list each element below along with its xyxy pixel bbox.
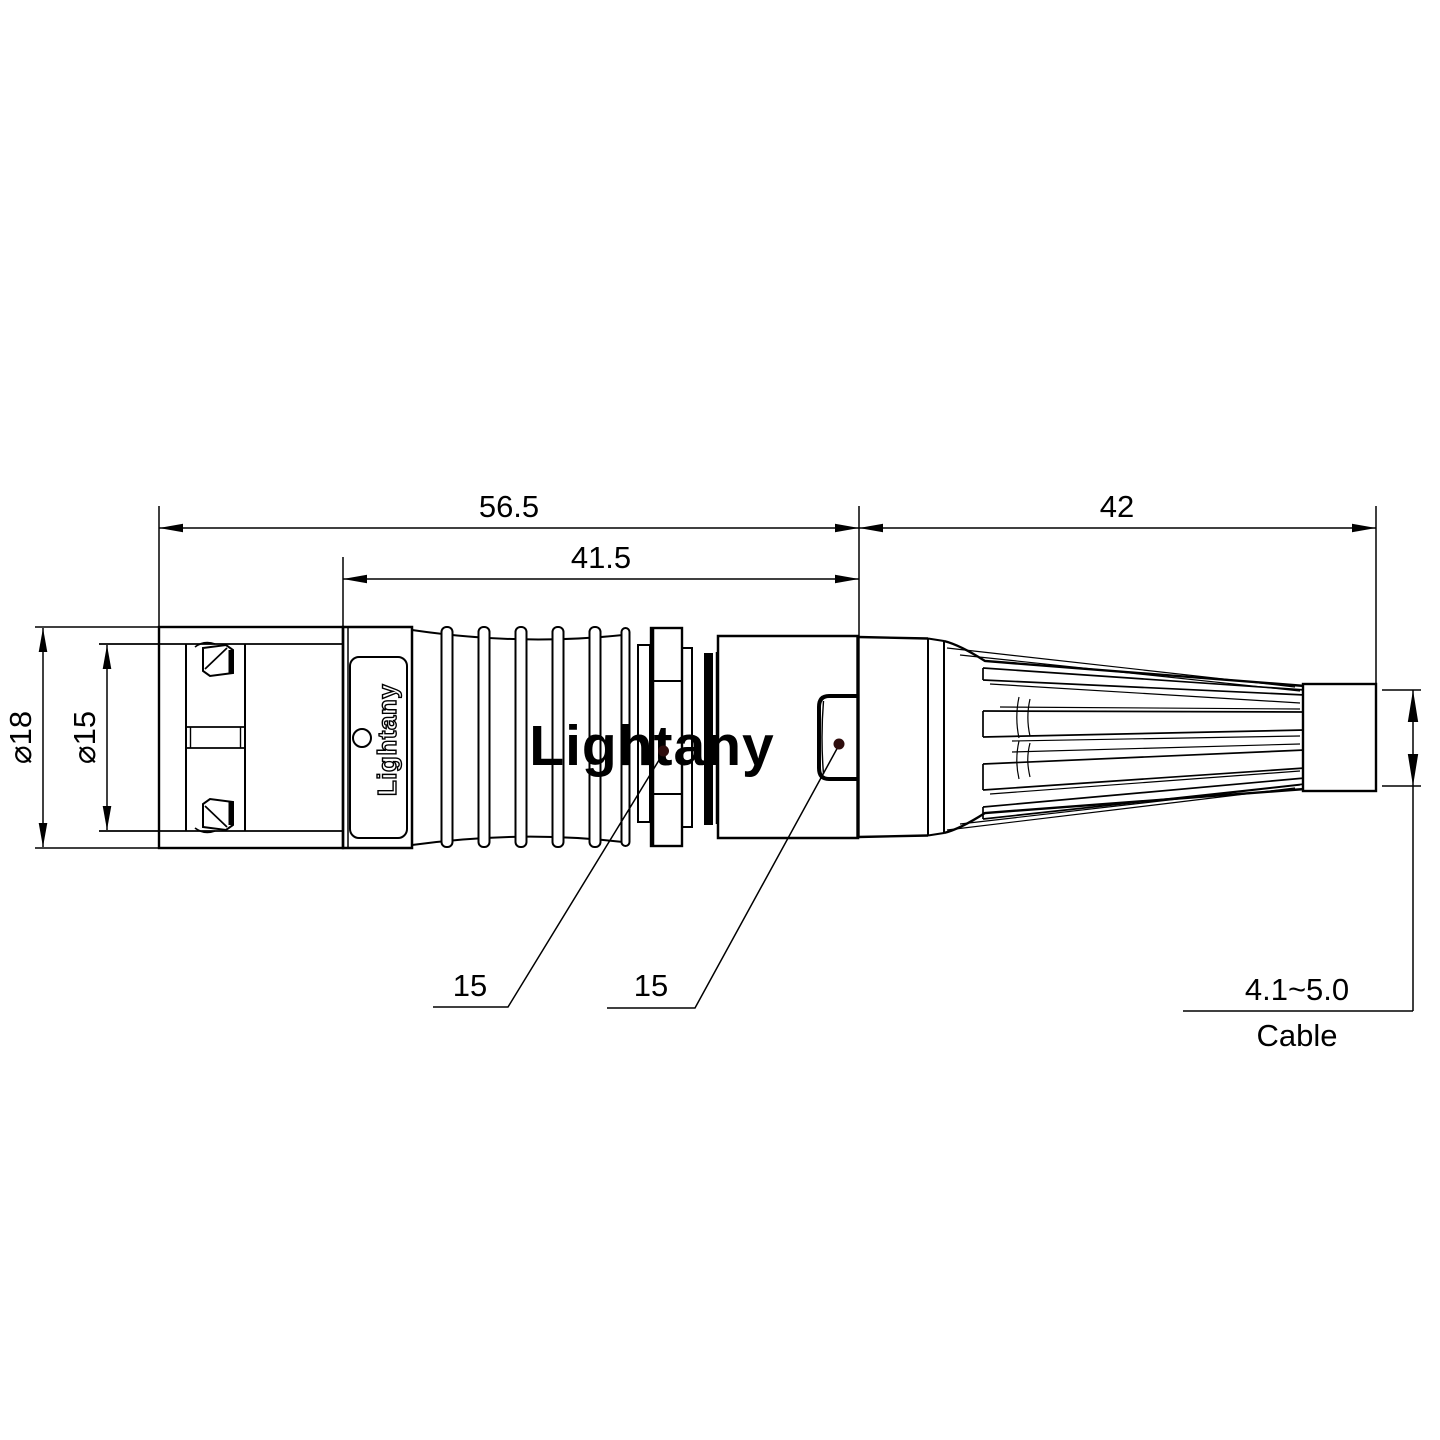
flute-diagonal <box>1000 707 1300 709</box>
fin-line <box>983 711 1305 712</box>
leader-dot-collar <box>658 746 669 757</box>
watermark-text: Lightany <box>529 714 775 778</box>
connector-side-view-drawing: Lightany Lightany 56.5 42 41.5 ⌀18 <box>0 0 1440 1440</box>
arrowhead <box>103 806 112 830</box>
flute-diagonal <box>1012 736 1300 741</box>
arrowhead <box>835 575 859 584</box>
dim-grip-length: 41.5 <box>571 540 631 575</box>
grip-index-circle <box>353 729 371 747</box>
boot-fins <box>983 668 1305 819</box>
dim-overall-length: 56.5 <box>479 489 539 524</box>
arrowhead <box>859 524 883 533</box>
technical-drawing-page: Lightany Lightany 56.5 42 41.5 ⌀18 <box>0 0 1440 1440</box>
callout-collar-ref: 15 <box>453 968 487 1003</box>
fin-line <box>983 750 1305 764</box>
arrowhead <box>1408 754 1418 786</box>
arrowhead <box>1408 690 1418 722</box>
cable-caption: Cable <box>1257 1018 1338 1053</box>
arrowhead <box>1352 524 1376 533</box>
arrowhead <box>343 575 367 584</box>
arrowhead <box>103 645 112 669</box>
latch-key-bottom <box>195 799 233 832</box>
arrowhead <box>39 628 48 652</box>
body-marking-text: Lightany <box>372 684 402 796</box>
backshell-window <box>819 696 858 779</box>
horizontal-dimensions: 56.5 42 41.5 <box>159 489 1376 684</box>
rib-ring <box>442 627 453 847</box>
arrowhead <box>835 524 859 533</box>
boot-cone-bottom <box>944 789 1305 833</box>
fin-line <box>983 768 1305 790</box>
fin-line <box>983 730 1305 737</box>
fin-line <box>983 784 1305 819</box>
rib-ring <box>479 627 490 847</box>
dim-outer-diameter: ⌀18 <box>3 711 38 764</box>
boot-base-top <box>858 637 928 639</box>
dim-front-diameter: ⌀15 <box>67 711 102 764</box>
boot-cone-top <box>944 641 1305 686</box>
backshell-window-inner-curve <box>822 701 824 774</box>
cable-exit-stub <box>1303 684 1376 791</box>
cable-diameter-range: 4.1~5.0 <box>1245 972 1349 1007</box>
strain-relief-boot <box>858 637 1376 837</box>
callout-backshell-ref: 15 <box>634 968 668 1003</box>
flute-groove-roots <box>1017 697 1030 779</box>
arrowhead <box>39 823 48 847</box>
front-coupling-nut <box>99 627 343 848</box>
diameter-dimensions: ⌀18 ⌀15 <box>3 627 159 848</box>
leader-dot-backshell <box>834 739 845 750</box>
boot-base-bottom <box>858 836 928 838</box>
latch-key-top <box>195 643 233 676</box>
boot-base-step <box>928 639 944 836</box>
flute-diagonal <box>1012 744 1300 752</box>
dim-boot-length: 42 <box>1100 489 1134 524</box>
rib-ring <box>516 627 527 847</box>
arrowhead <box>159 524 183 533</box>
